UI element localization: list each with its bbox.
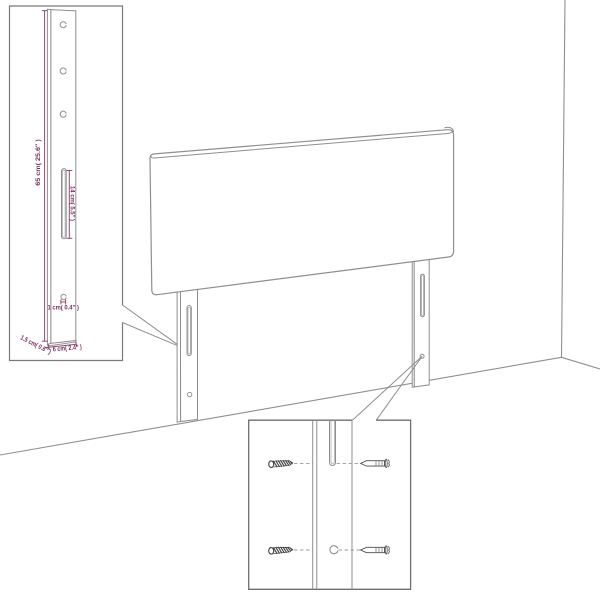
svg-text:14 cm( 5.5″ ): 14 cm( 5.5″ ) — [69, 186, 76, 221]
svg-text:1 cm( 0.4″ ): 1 cm( 0.4″ ) — [47, 305, 79, 312]
svg-text:65 cm( 25.6″ ): 65 cm( 25.6″ ) — [35, 139, 42, 186]
